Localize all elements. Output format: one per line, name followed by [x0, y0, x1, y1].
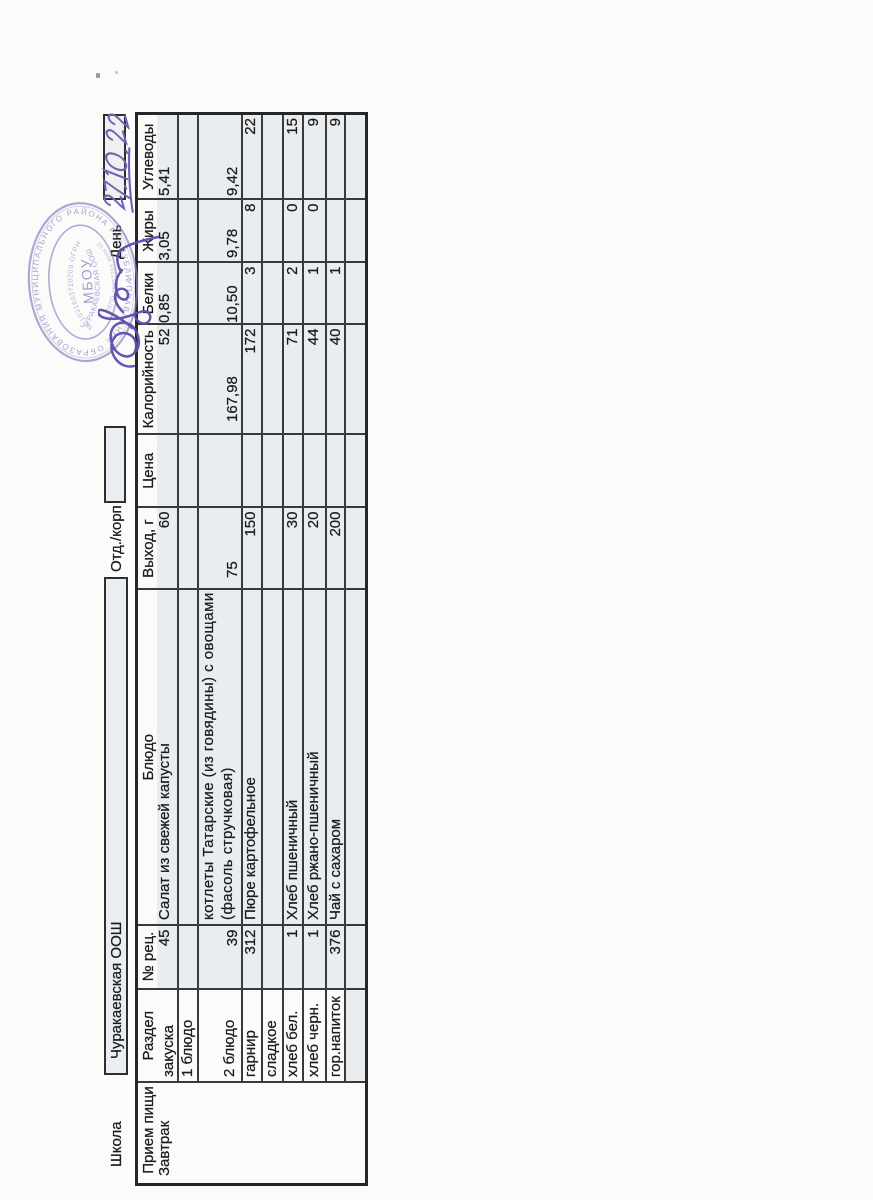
svg-text:МБОУ: МБОУ: [77, 257, 96, 304]
